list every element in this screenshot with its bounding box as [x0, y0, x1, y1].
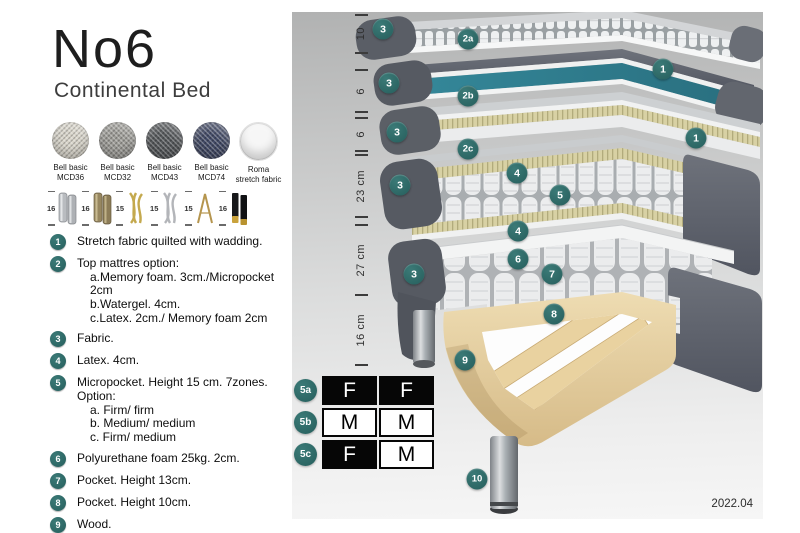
layer-badge-9: 9 [455, 350, 476, 371]
feature-text: Micropocket. Height 15 cm. 7zones. Optio… [77, 375, 288, 444]
leg-height-label: 16 [219, 204, 227, 213]
leg-height-ruler: 16 [47, 191, 55, 226]
feature-item-1: 1Stretch fabric quilted with wadding. [50, 234, 288, 250]
version-label: 2022.04 [711, 498, 753, 510]
dimension-label: 6 [355, 131, 367, 138]
layer-badge-6: 6 [508, 249, 529, 270]
back-leg [413, 310, 435, 368]
swatch-label: Bell basicMCD43 [147, 163, 181, 183]
product-subtitle: Continental Bed [54, 79, 211, 103]
feature-subitem: b.Watergel. 4cm. [90, 298, 288, 312]
leg-option-cylinder-silver: 16 [47, 190, 78, 226]
feature-subitem: b. Medium/ medium [90, 417, 288, 431]
layer-badge-2b: 2b [458, 86, 479, 107]
swatch-label: Bell basicMCD74 [194, 163, 228, 183]
leg-height-ruler: 16 [219, 191, 227, 226]
feature-item-4: 4Latex. 4cm. [50, 353, 288, 369]
swatch-item: Bell basicMCD43 [143, 122, 186, 185]
firmness-badge-5a: 5a [294, 379, 317, 402]
firmness-cell: M [379, 408, 434, 437]
feature-item-7: 7Pocket. Height 13cm. [50, 473, 288, 489]
feature-item-8: 8Pocket. Height 10cm. [50, 495, 288, 511]
cylinder-silver-icon [56, 190, 78, 226]
feature-number-badge: 7 [50, 473, 66, 489]
feature-subitem: a.Memory foam. 3cm./Micropocket 2cm [90, 271, 288, 298]
dimension-label: 10 [355, 27, 367, 40]
bed-diagram-panel: 106623 cm27 cm16 cm 32a132b32c1345436789… [292, 12, 763, 519]
twisted-silver-icon [159, 190, 181, 226]
layer-badge-4: 4 [507, 163, 528, 184]
product-sheet: No6 Continental Bed Bell basicMCD36Bell … [0, 0, 800, 533]
fabric-swatch-circle [239, 122, 278, 161]
front-leg [490, 436, 518, 514]
feature-text: Pocket. Height 13cm. [77, 473, 191, 489]
swatch-item: Bell basicMCD36 [49, 122, 92, 185]
feature-item-2: 2Top mattres option:a.Memory foam. 3cm./… [50, 256, 288, 325]
firmness-cell: F [322, 440, 377, 469]
dimension-6: 6 [346, 117, 376, 152]
feature-subitem: a. Firm/ firm [90, 404, 288, 418]
leg-height-label: 15 [184, 204, 192, 213]
firmness-cell: F [322, 376, 377, 405]
feature-text: Latex. 4cm. [77, 353, 139, 369]
fabric-swatch-circle [146, 122, 183, 159]
firmness-row-5a: 5aFF [294, 376, 434, 405]
dimension-label: 6 [355, 88, 367, 95]
feature-number-badge: 2 [50, 256, 66, 272]
info-column: No6 Continental Bed Bell basicMCD36Bell … [0, 0, 292, 533]
leg-options: 161615151516 [47, 190, 250, 226]
dimension-label: 16 cm [355, 314, 367, 346]
layer-badge-3: 3 [404, 264, 425, 285]
dimension-16-cm: 16 cm [346, 294, 376, 366]
feature-number-badge: 3 [50, 331, 66, 347]
layer-badge-2c: 2c [458, 139, 479, 160]
feature-text: Stretch fabric quilted with wadding. [77, 234, 262, 250]
feature-item-9: 9Wood. [50, 517, 288, 533]
layer-badge-4: 4 [508, 221, 529, 242]
firmness-row-5c: 5cFM [294, 440, 434, 469]
feature-item-3: 3Fabric. [50, 331, 288, 347]
leg-option-block-black-gold: 16 [219, 190, 250, 226]
layer-badge-1: 1 [686, 128, 707, 149]
layer-badge-3: 3 [387, 122, 408, 143]
feature-number-badge: 1 [50, 234, 66, 250]
cylinder-bronze-icon [91, 190, 113, 226]
firmness-badge-5b: 5b [294, 411, 317, 434]
feature-number-badge: 8 [50, 495, 66, 511]
layer-badge-3: 3 [373, 19, 394, 40]
layer-badge-1: 1 [653, 59, 674, 80]
feature-number-badge: 9 [50, 517, 66, 533]
leg-height-ruler: 16 [81, 191, 89, 226]
layer-badge-7: 7 [542, 264, 563, 285]
firmness-cell: M [322, 408, 377, 437]
feature-number-badge: 5 [50, 375, 66, 391]
dimension-label: 27 cm [355, 244, 367, 276]
feature-text: Wood. [77, 517, 111, 533]
firmness-row-5b: 5bMM [294, 408, 434, 437]
fabric-swatch-circle [193, 122, 230, 159]
swatch-label: Bell basicMCD36 [53, 163, 87, 183]
product-title: No6 [52, 18, 157, 80]
feature-item-5: 5Micropocket. Height 15 cm. 7zones. Opti… [50, 375, 288, 444]
swatch-label: Bell basicMCD32 [100, 163, 134, 183]
feature-subitem: c.Latex. 2cm./ Memory foam 2cm [90, 312, 288, 326]
feature-number-badge: 4 [50, 353, 66, 369]
leg-height-ruler: 15 [184, 191, 192, 226]
leg-option-cylinder-bronze: 16 [81, 190, 112, 226]
firmness-cell: M [379, 440, 434, 469]
hairpin-icon [194, 190, 216, 226]
swatch-item: Bell basicMCD74 [190, 122, 233, 185]
swatch-item: Romastretch fabric [237, 122, 280, 185]
twisted-gold-icon [125, 190, 147, 226]
fabric-swatches: Bell basicMCD36Bell basicMCD32Bell basic… [49, 122, 280, 185]
feature-item-6: 6Polyurethane foam 25kg. 2cm. [50, 451, 288, 467]
swatch-label: Romastretch fabric [236, 165, 282, 185]
firmness-badge-5c: 5c [294, 443, 317, 466]
feature-list: 1Stretch fabric quilted with wadding.2To… [50, 234, 288, 533]
layer-badge-2a: 2a [458, 29, 479, 50]
leg-option-hairpin: 15 [184, 190, 215, 226]
feature-text: Pocket. Height 10cm. [77, 495, 191, 511]
fabric-swatch-circle [99, 122, 136, 159]
firmness-cell: F [379, 376, 434, 405]
layer-badge-10: 10 [467, 469, 488, 490]
feature-subitem: c. Firm/ medium [90, 431, 288, 445]
fabric-swatch-circle [52, 122, 89, 159]
swatch-item: Bell basicMCD32 [96, 122, 139, 185]
feature-text: Fabric. [77, 331, 114, 347]
feature-number-badge: 6 [50, 451, 66, 467]
layer-badge-8: 8 [544, 304, 565, 325]
leg-height-ruler: 15 [116, 191, 124, 226]
dimension-label: 23 cm [355, 170, 367, 202]
layer-badge-3: 3 [379, 73, 400, 94]
leg-height-label: 16 [81, 204, 89, 213]
leg-height-label: 15 [116, 204, 124, 213]
leg-height-label: 16 [47, 204, 55, 213]
layer-badge-3: 3 [390, 175, 411, 196]
block-black-gold-icon [228, 190, 250, 226]
dimension-10: 10 [346, 14, 376, 54]
feature-text: Top mattres option:a.Memory foam. 3cm./M… [77, 256, 288, 325]
leg-option-twisted-silver: 15 [150, 190, 181, 226]
dimension-23-cm: 23 cm [346, 154, 376, 218]
dimension-27-cm: 27 cm [346, 224, 376, 296]
leg-height-label: 15 [150, 204, 158, 213]
layer-badge-5: 5 [550, 185, 571, 206]
leg-height-ruler: 15 [150, 191, 158, 226]
feature-text: Polyurethane foam 25kg. 2cm. [77, 451, 240, 467]
dimension-6: 6 [346, 69, 376, 113]
leg-option-twisted-gold: 15 [116, 190, 147, 226]
